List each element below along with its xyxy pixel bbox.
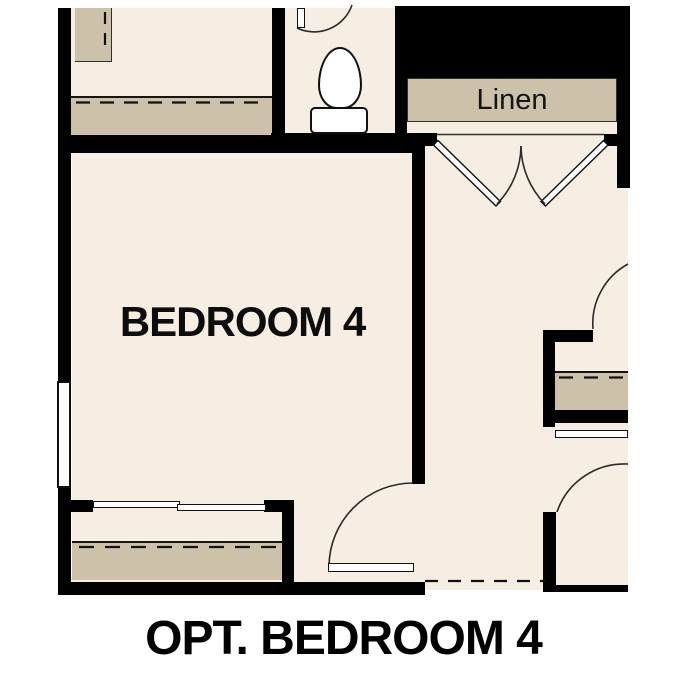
linen-closet-cabinet: Linen <box>407 78 617 122</box>
bedroom-4-label: BEDROOM 4 <box>72 298 413 346</box>
hall-floor <box>425 140 628 590</box>
wall <box>58 8 71 382</box>
bedroom-door-leaf <box>328 563 414 572</box>
window <box>57 381 71 488</box>
bathroom-door-jamb <box>297 8 305 28</box>
bedroom-4-floor <box>72 150 413 582</box>
wall <box>604 134 617 146</box>
bypass-closet-door-panel <box>93 501 180 508</box>
wall <box>71 500 93 512</box>
right-closet-shelf-band <box>555 371 628 410</box>
wall <box>58 135 425 153</box>
bypass-closet-door-panel <box>177 504 266 511</box>
wall <box>543 330 555 427</box>
wall <box>555 410 628 423</box>
wall <box>556 585 628 592</box>
wall <box>58 487 71 582</box>
floor-plan: Linen BEDROOM 4 OPT. BEDROOM 4 <box>0 0 687 687</box>
plan-caption: OPT. BEDROOM 4 <box>0 611 687 666</box>
wall <box>282 500 294 583</box>
wall <box>543 512 556 592</box>
wall-mass-top-right <box>395 6 630 85</box>
wall <box>58 582 425 595</box>
upper-left-cabinet <box>75 8 112 62</box>
linen-label: Linen <box>408 79 616 121</box>
upper-room-shelf-band <box>71 96 272 135</box>
wall <box>412 137 425 484</box>
wall <box>272 8 285 146</box>
linen-closet-floor <box>407 122 617 148</box>
wall <box>617 85 630 188</box>
right-closet-shelf-edge <box>555 430 628 438</box>
toilet-tank-icon <box>310 107 368 134</box>
bedroom-closet-shelf-band <box>72 541 283 580</box>
